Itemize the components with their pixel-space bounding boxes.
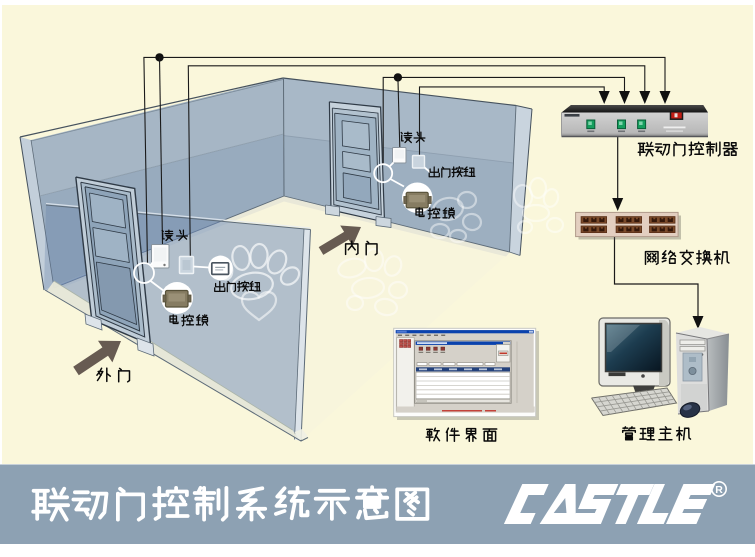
svg-text:R: R: [715, 484, 723, 496]
